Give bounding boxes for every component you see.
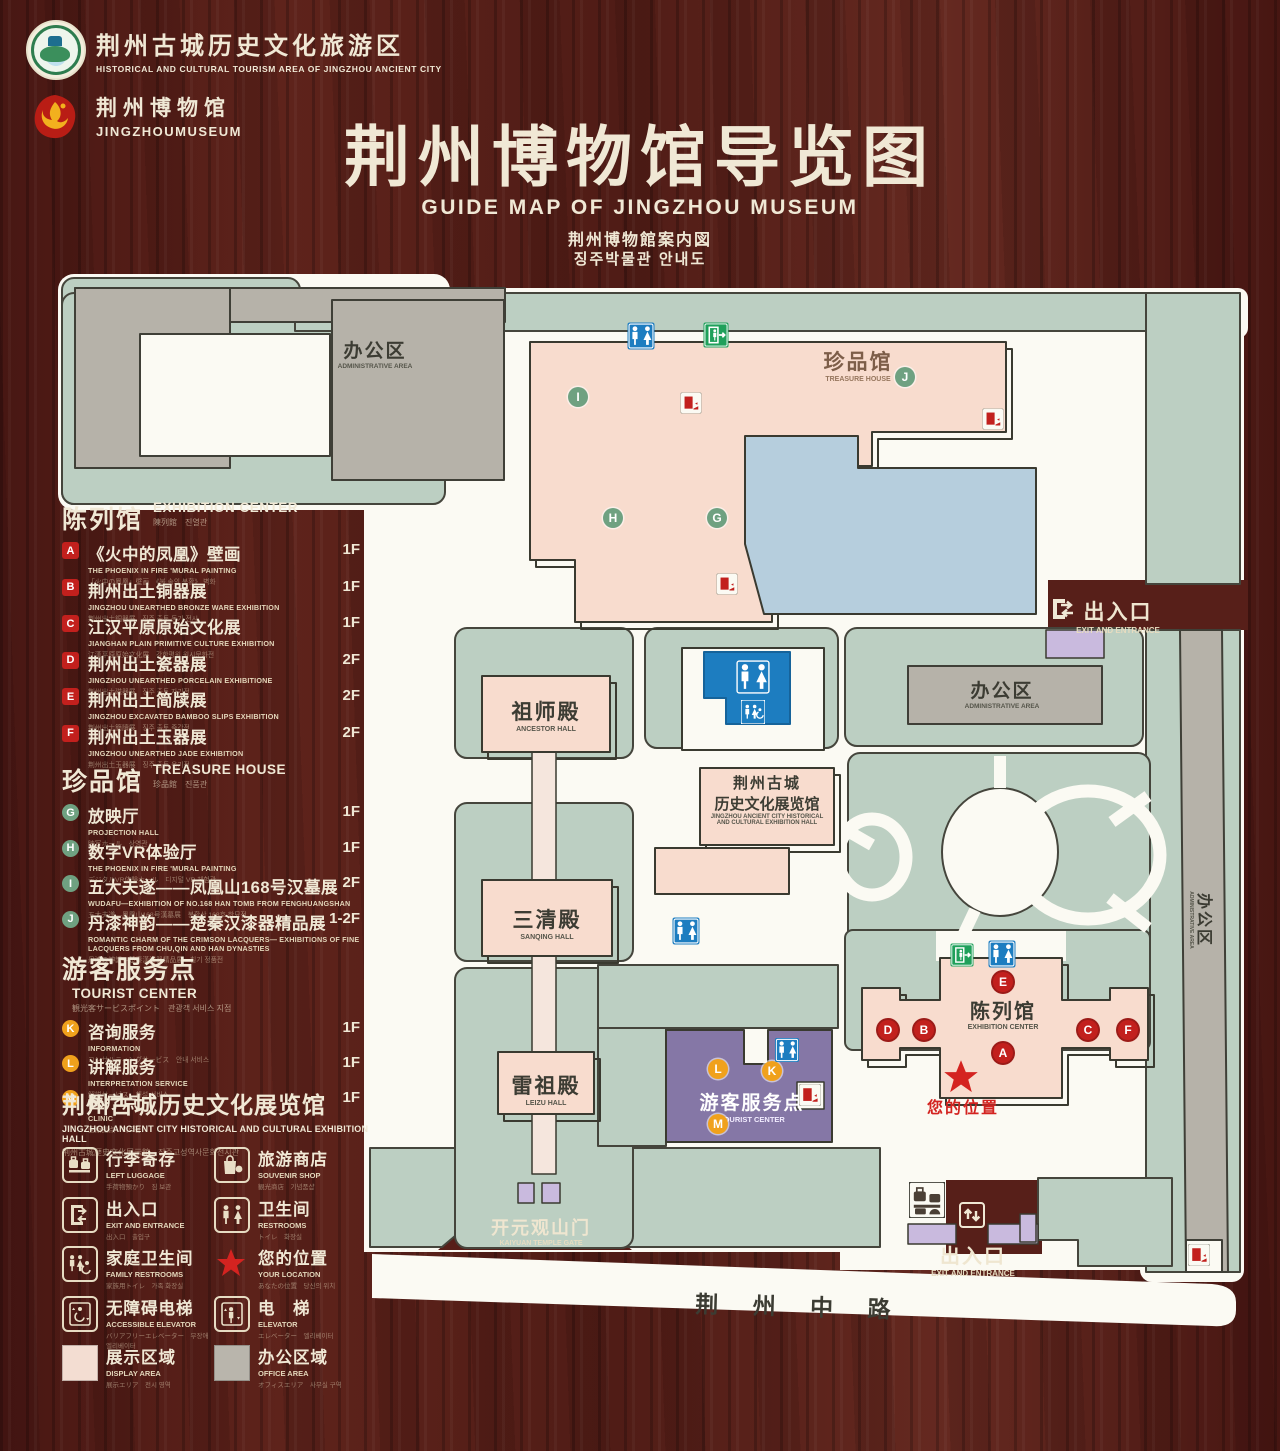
- souvenir-shop-icon: [214, 1147, 250, 1183]
- marker-chip-C: C: [62, 615, 79, 632]
- item-english: JINGZHOU UNEARTHED JADE EXHIBITION: [88, 749, 362, 758]
- legend-cell-text: 出入口EXIT AND ENTRANCE出入口 출입구: [106, 1196, 212, 1241]
- accessible-elevator-icon: [62, 1296, 98, 1332]
- legend-cell-exit-entrance: 出入口EXIT AND ENTRANCE出入口 출입구: [62, 1196, 212, 1245]
- legend-cell-title: 展示区域: [106, 1344, 212, 1368]
- map-label-exit-bottom: 出入口EXIT AND ENTRANCE: [931, 1240, 1015, 1278]
- marker-chip-A: A: [62, 542, 79, 559]
- legend-cell-text: 办公区域OFFICE AREAオフィスエリア 사무실 구역: [258, 1344, 364, 1389]
- map-marker-G: G: [707, 508, 727, 528]
- marker-chip-I: I: [62, 875, 79, 892]
- marker-chip-E: E: [62, 688, 79, 705]
- map-label-english: ANCESTOR HALL: [512, 726, 581, 733]
- souvenir-shop-frame: [214, 1147, 250, 1183]
- item-title: 荆州出土简牍展: [88, 687, 362, 711]
- elevator-frame: [214, 1296, 250, 1332]
- elevator-icon: [214, 1296, 250, 1332]
- legend-item-B: B荆州出土铜器展JINGZHOU UNEARTHED BRONZE WARE E…: [62, 578, 362, 615]
- item-floor: 1F: [342, 541, 360, 558]
- section-sub-line: 観光客サービスポイント 관광객 서비스 지점: [72, 1003, 231, 1014]
- legend-cell-text: 家庭卫生间FAMILY RESTROOMS家族用トイレ 가족 화장실: [106, 1245, 212, 1290]
- section-en-line: EXHIBITION CENTER: [153, 500, 298, 515]
- restroom-icon: [673, 918, 700, 945]
- map-marker-B: B: [914, 1020, 934, 1040]
- legend-item-I: I五大夫遂——凤凰山168号汉墓展WUDAFU—EXHIBITION OF NO…: [62, 874, 362, 910]
- star-icon: [942, 1058, 980, 1096]
- family-restrooms-icon: [62, 1246, 98, 1282]
- legend-cell-english: OFFICE AREA: [258, 1369, 364, 1378]
- map-label-text-2: 历史文化展览馆: [711, 793, 824, 814]
- map-label-text: 开元观山门: [491, 1214, 591, 1240]
- legend-item-E: E荆州出土简牍展JINGZHOU EXCAVATED BAMBOO SLIPS …: [62, 687, 362, 724]
- escalator-icon: [799, 1084, 821, 1106]
- map-label-english-2: AND CULTURAL EXHIBITION HALL: [711, 820, 824, 826]
- item-english: WUDAFU—EXHIBITION OF NO.168 HAN TOMB FRO…: [88, 899, 362, 908]
- legend-cell-sub: 展示エリア 전시 영역: [106, 1379, 212, 1389]
- item-title: 丹漆神韵——楚秦汉漆器精品展: [88, 910, 362, 934]
- tourism-area-title: 荆州古城历史文化旅游区: [96, 26, 442, 61]
- accessible-elevator-frame: [62, 1296, 98, 1332]
- map-marker-F: F: [1118, 1020, 1138, 1040]
- family-restrooms-frame: [62, 1246, 98, 1282]
- map-label-english: ADMINISTRATIVE AREA: [965, 703, 1040, 710]
- map-marker-L: L: [708, 1059, 728, 1079]
- escalator-icon: [1188, 1244, 1210, 1266]
- legend-cell-sub: オフィスエリア 사무실 구역: [258, 1379, 364, 1389]
- map-label-english: TREASURE HOUSE: [824, 376, 893, 383]
- section-english: TREASURE HOUSE珍品館 진품관: [153, 762, 286, 790]
- item-title: 讲解服务: [88, 1054, 362, 1078]
- map-label-text: 游客服务点: [699, 1088, 804, 1115]
- exit-entrance-frame: [62, 1197, 98, 1233]
- legend-cell-title: 旅游商店: [258, 1146, 364, 1170]
- exit-arrows-icon: [1049, 595, 1077, 623]
- item-floor: 1F: [342, 1054, 360, 1071]
- map-label-sanqing-hall: 三清殿SANQING HALL: [513, 904, 582, 941]
- map-label-english: EXIT AND ENTRANCE: [931, 1269, 1015, 1278]
- legend-cell-english: ELEVATOR: [258, 1320, 364, 1329]
- item-floor: 2F: [342, 724, 360, 741]
- legend-cell-souvenir-shop: 旅游商店SOUVENIR SHOP観光商店 기념품샵: [214, 1146, 364, 1195]
- legend-section-treasure-house: 珍品馆TREASURE HOUSE珍品館 진품관G放映厅PROJECTION H…: [62, 762, 362, 962]
- tourism-area-emblem-icon: [31, 25, 81, 75]
- family-white-icon: [741, 700, 765, 724]
- map-label-text: 荆 州 中 路: [695, 1285, 905, 1325]
- legend-cell-english: LEFT LUGGAGE: [106, 1171, 212, 1180]
- item-english: JINGZHOU UNEARTHED PORCELAIN EXHIBITIONE: [88, 676, 362, 685]
- tourism-area-subtitle: HISTORICAL AND CULTURAL TOURISM AREA OF …: [96, 64, 442, 74]
- escalator-icon: [983, 409, 1004, 430]
- marker-chip-D: D: [62, 652, 79, 669]
- item-english: INFORMATION: [88, 1044, 362, 1053]
- marker-chip-G: G: [62, 804, 79, 821]
- section-sub-line: 珍品館 진품관: [153, 779, 286, 790]
- legend-cell-sub: 出入口 출입구: [106, 1231, 212, 1241]
- map-label-jingzhou-middle-road: 荆 州 中 路: [695, 1285, 905, 1325]
- map-label-exit-top-right: 出入口EXIT AND ENTRANCE: [1076, 596, 1160, 635]
- item-title: 荆州出土玉器展: [88, 724, 362, 748]
- legend-cell-sub: 家族用トイレ 가족 화장실: [106, 1280, 212, 1290]
- legend-cell-text: 电 梯ELEVATORエレベーター 엘리베이터: [258, 1295, 364, 1340]
- legend-cell-sub: あなたの位置 당신의 위치: [258, 1280, 364, 1290]
- item-title: 荆州出土瓷器展: [88, 651, 362, 675]
- section-en-line: TOURIST CENTER: [72, 986, 231, 1001]
- legend-item-K: K咨询服务INFORMATIONコンサルティングサービス 안내 서비스1F: [62, 1019, 362, 1054]
- marker-chip-H: H: [62, 840, 79, 857]
- legend-cell-text: 卫生间RESTROOMSトイレ 화장실: [258, 1196, 364, 1241]
- page-title: 荆州博物馆导览图: [0, 104, 1280, 200]
- legend-cell-english: FAMILY RESTROOMS: [106, 1270, 212, 1279]
- map-label-english: KAIYUAN TEMPLE GATE: [491, 1240, 591, 1247]
- hall-note-english: JINGZHOU ANCIENT CITY HISTORICAL AND CUL…: [62, 1124, 372, 1144]
- legend-cell-sub: 観光商店 기념품샵: [258, 1181, 364, 1191]
- item-title: 放映厅: [88, 803, 362, 827]
- legend-cell-text: 展示区域DISPLAY AREA展示エリア 전시 영역: [106, 1344, 212, 1389]
- map-marker-A: A: [993, 1043, 1013, 1063]
- restroom-icon: [735, 659, 771, 695]
- legend-cell-title: 无障碍电梯: [106, 1295, 212, 1319]
- map-label-your-location: 您的位置: [927, 1094, 999, 1118]
- left-luggage-frame: [62, 1147, 98, 1183]
- item-english: PROJECTION HALL: [88, 828, 362, 837]
- item-english: JINGZHOU UNEARTHED BRONZE WARE EXHIBITIO…: [88, 603, 362, 612]
- restrooms-icon: [214, 1197, 250, 1233]
- legend-item-G: G放映厅PROJECTION HALL映写ホール 상영관1F: [62, 803, 362, 839]
- legend-cell-display-area: 展示区域DISPLAY AREA展示エリア 전시 영역: [62, 1344, 212, 1393]
- map-marker-J: J: [895, 367, 915, 387]
- exit-icon: [704, 323, 729, 348]
- map-marker-K: K: [762, 1061, 782, 1081]
- legend-cell-text: 行李寄存LEFT LUGGAGE手荷物預かり 짐 보관: [106, 1146, 212, 1191]
- section-header-treasure-house: 珍品馆TREASURE HOUSE珍品館 진품관: [62, 762, 362, 798]
- item-floor: 1F: [342, 614, 360, 631]
- map-label-kaiyuan-temple-gate: 开元观山门KAIYUAN TEMPLE GATE: [491, 1214, 591, 1247]
- section-header-tourist-center: 游客服务点TOURIST CENTER観光客サービスポイント 관광객 서비스 지…: [62, 950, 362, 1014]
- item-floor: 2F: [342, 651, 360, 668]
- map-label-text: 珍品馆: [824, 346, 893, 376]
- legend-section-exhibition-center: 陈列馆EXHIBITION CENTER陳列館 진열관A《火中的凤凰》壁画THE…: [62, 500, 362, 760]
- section-title: 陈列馆: [62, 500, 143, 536]
- hall-note-title: 荆州古城历史文化展览馆: [62, 1086, 372, 1120]
- restroom-icon: [628, 323, 655, 350]
- legend-cell-title: 家庭卫生间: [106, 1245, 212, 1269]
- legend-item-H: H数字VR体验厅THE PHOENIX IN FIRE 'MURAL PAINT…: [62, 839, 362, 875]
- restroom-icon: [775, 1038, 799, 1062]
- map-label-text: 荆州古城: [711, 772, 824, 793]
- marker-chip-K: K: [62, 1020, 79, 1037]
- legend-cell-sub: エレベーター 엘리베이터: [258, 1330, 364, 1340]
- legend-cell-restrooms: 卫生间RESTROOMSトイレ 화장실: [214, 1196, 364, 1245]
- map-label-english: ADMINISTRATIVE AREA: [338, 363, 413, 370]
- section-header-exhibition-center: 陈列馆EXHIBITION CENTER陳列館 진열관: [62, 500, 362, 536]
- legend-item-F: F荆州出土玉器展JINGZHOU UNEARTHED JADE EXHIBITI…: [62, 724, 362, 761]
- map-label-text: 陈列馆: [968, 995, 1039, 1024]
- item-title: 荆州出土铜器展: [88, 578, 362, 602]
- map-label-text: 办公区: [1194, 891, 1218, 949]
- item-english: JINGZHOU EXCAVATED BAMBOO SLIPS EXHIBITI…: [88, 712, 362, 721]
- map-label-text: 出入口: [1076, 596, 1160, 626]
- map-label-english: LEIZU HALL: [512, 1100, 581, 1107]
- legend-cell-english: YOUR LOCATION: [258, 1270, 364, 1279]
- legend-cell-left-luggage: 行李寄存LEFT LUGGAGE手荷物預かり 짐 보관: [62, 1146, 212, 1195]
- map-label-text: 出入口: [931, 1240, 1015, 1269]
- map-marker-E: E: [993, 972, 1013, 992]
- section-sub-line: 陳列館 진열관: [153, 517, 298, 528]
- exit-icon: [951, 944, 974, 967]
- page-title-english: GUIDE MAP OF JINGZHOU MUSEUM: [0, 196, 1280, 220]
- legend-cell-title: 您的位置: [258, 1245, 364, 1269]
- map-marker-C: C: [1078, 1020, 1098, 1040]
- office-area-icon: [214, 1345, 250, 1381]
- map-marker-H: H: [603, 508, 623, 528]
- restrooms-frame: [214, 1197, 250, 1233]
- map-label-english: SANQING HALL: [513, 934, 582, 941]
- map-label-text: 祖师殿: [512, 696, 581, 726]
- item-floor: 1-2F: [329, 910, 360, 927]
- legend-item-C: C江汉平原原始文化展JIANGHAN PLAIN PRIMITIVE CULTU…: [62, 614, 362, 651]
- page-title-japanese: 荆州博物館案内図: [0, 226, 1280, 250]
- left-luggage-icon: [62, 1147, 98, 1183]
- legend-cell-text: 旅游商店SOUVENIR SHOP観光商店 기념품샵: [258, 1146, 364, 1191]
- legend-cell-english: DISPLAY AREA: [106, 1369, 212, 1378]
- updown-icon: [958, 1201, 986, 1229]
- display-area-icon: [62, 1345, 98, 1381]
- escalator-icon: [717, 574, 738, 595]
- legend-cell-title: 行李寄存: [106, 1146, 212, 1170]
- luggage-icon: [909, 1182, 945, 1218]
- map-label-admin-area-topleft: 办公区ADMINISTRATIVE AREA: [338, 336, 413, 370]
- marker-chip-J: J: [62, 911, 79, 928]
- legend-cell-title: 出入口: [106, 1196, 212, 1220]
- map-label-english: EXHIBITION CENTER: [968, 1024, 1039, 1031]
- map-label-text: 办公区: [338, 336, 413, 363]
- section-english: TOURIST CENTER観光客サービスポイント 관광객 서비스 지점: [72, 986, 231, 1014]
- legend-cell-your-location: 您的位置YOUR LOCATIONあなたの位置 당신의 위치: [214, 1245, 364, 1294]
- item-title: 江汉平原原始文化展: [88, 614, 362, 638]
- map-label-ancestor-hall: 祖师殿ANCESTOR HALL: [512, 696, 581, 733]
- legend-cell-english: RESTROOMS: [258, 1221, 364, 1230]
- legend-cell-sub: トイレ 화장실: [258, 1231, 364, 1241]
- map-marker-M: M: [708, 1114, 728, 1134]
- map-label-admin-area-right: 办公区ADMINISTRATIVE AREA: [965, 676, 1040, 710]
- item-floor: 1F: [342, 803, 360, 820]
- exit-entrance-icon: [62, 1197, 98, 1233]
- map-label-leizu-hall: 雷祖殿LEIZU HALL: [512, 1070, 581, 1107]
- item-floor: 1F: [342, 1019, 360, 1036]
- legend-cell-office-area: 办公区域OFFICE AREAオフィスエリア 사무실 구역: [214, 1344, 364, 1393]
- section-title: 珍品馆: [62, 762, 143, 798]
- legend-cell-text: 您的位置YOUR LOCATIONあなたの位置 당신의 위치: [258, 1245, 364, 1290]
- legend-item-A: A《火中的凤凰》壁画THE PHOENIX IN FIRE 'MURAL PAI…: [62, 541, 362, 578]
- section-english: EXHIBITION CENTER陳列館 진열관: [153, 500, 298, 528]
- map-label-text: 三清殿: [513, 904, 582, 934]
- legend-cell-sub: 手荷物預かり 짐 보관: [106, 1181, 212, 1191]
- legend-cell-elevator: 电 梯ELEVATORエレベーター 엘리베이터: [214, 1295, 364, 1344]
- item-title: 咨询服务: [88, 1019, 362, 1043]
- section-en-line: TREASURE HOUSE: [153, 762, 286, 777]
- marker-chip-F: F: [62, 725, 79, 742]
- item-title: 数字VR体验厅: [88, 839, 362, 863]
- your-location-icon: [214, 1246, 250, 1282]
- marker-chip-L: L: [62, 1055, 79, 1072]
- map-label-ancient-city-hall: 荆州古城历史文化展览馆JINGZHOU ANCIENT CITY HISTORI…: [711, 772, 824, 826]
- item-floor: 1F: [342, 578, 360, 595]
- legend-cell-title: 卫生间: [258, 1196, 364, 1220]
- legend-cell-family-restrooms: 家庭卫生间FAMILY RESTROOMS家族用トイレ 가족 화장실: [62, 1245, 212, 1294]
- item-english: THE PHOENIX IN FIRE 'MURAL PAINTING: [88, 566, 362, 575]
- item-floor: 2F: [342, 687, 360, 704]
- map-marker-I: I: [568, 387, 588, 407]
- legend-cell-text: 无障碍电梯ACCESSIBLE ELEVATORバリアフリーエレベーター 무장애…: [106, 1295, 212, 1350]
- map-label-english: EXIT AND ENTRANCE: [1076, 626, 1160, 635]
- legend-item-D: D荆州出土瓷器展JINGZHOU UNEARTHED PORCELAIN EXH…: [62, 651, 362, 688]
- item-floor: 1F: [342, 839, 360, 856]
- section-title: 游客服务点: [62, 950, 197, 986]
- map-label-text: 雷祖殿: [512, 1070, 581, 1100]
- item-title: 《火中的凤凰》壁画: [88, 541, 362, 565]
- legend-cell-english: ACCESSIBLE ELEVATOR: [106, 1320, 212, 1329]
- item-floor: 2F: [342, 874, 360, 891]
- legend-cell-title: 办公区域: [258, 1344, 364, 1368]
- map-label-text: 您的位置: [927, 1094, 999, 1118]
- legend-cell-english: SOUVENIR SHOP: [258, 1171, 364, 1180]
- map-marker-D: D: [878, 1020, 898, 1040]
- escalator-icon: [681, 393, 702, 414]
- map-label-exhibition-center: 陈列馆EXHIBITION CENTER: [968, 995, 1039, 1031]
- page-title-korean: 징주박물관 안내도: [0, 248, 1280, 269]
- map-label-admin-area-strip: 办公区ADMINISTRATIVE AREA: [1188, 891, 1218, 949]
- item-english: THE PHOENIX IN FIRE 'MURAL PAINTING: [88, 864, 362, 873]
- tourism-area-logo: [26, 20, 86, 80]
- legend-cell-title: 电 梯: [258, 1295, 364, 1319]
- item-title: 五大夫遂——凤凰山168号汉墓展: [88, 874, 362, 898]
- legend-item-L: L讲解服务INTERPRETATION SERVICE解説サービス 해설 서비스…: [62, 1054, 362, 1089]
- legend-cell-english: EXIT AND ENTRANCE: [106, 1221, 212, 1230]
- map-label-english: ADMINISTRATIVE AREA: [1188, 891, 1194, 949]
- map-label-treasure-house: 珍品馆TREASURE HOUSE: [824, 346, 893, 383]
- map-label-text: 办公区: [965, 676, 1040, 703]
- item-english: JIANGHAN PLAIN PRIMITIVE CULTURE EXHIBIT…: [88, 639, 362, 648]
- restroom-icon: [989, 941, 1016, 968]
- marker-chip-B: B: [62, 579, 79, 596]
- legend-cell-accessible-elevator: 无障碍电梯ACCESSIBLE ELEVATORバリアフリーエレベーター 무장애…: [62, 1295, 212, 1344]
